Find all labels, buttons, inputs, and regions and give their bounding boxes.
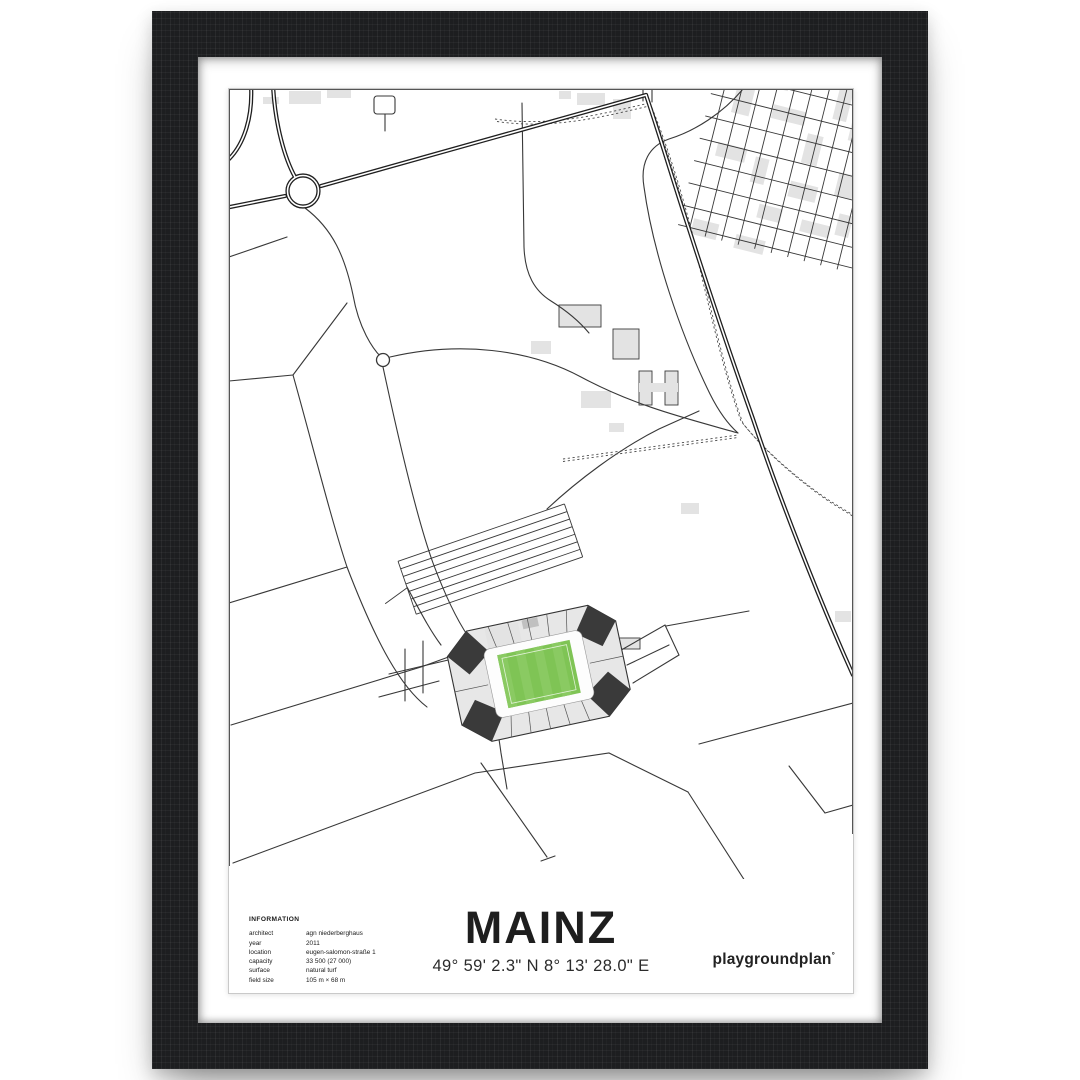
footpath-dashed <box>495 103 853 518</box>
grid-streets <box>677 89 853 276</box>
mat: INFORMATION architectagn niederberghaus … <box>198 57 882 1023</box>
street-grid <box>676 89 853 280</box>
brand-logo: playgroundplan° <box>713 951 835 969</box>
poster: INFORMATION architectagn niederberghaus … <box>228 88 854 994</box>
parking-rows <box>373 504 582 623</box>
map <box>229 89 853 879</box>
picture-frame: INFORMATION architectagn niederberghaus … <box>152 11 928 1069</box>
poster-title: MAINZ <box>229 905 853 951</box>
map-border <box>230 90 853 867</box>
brand-mark: ° <box>832 951 835 960</box>
info-row: field size105 m × 68 m <box>249 976 376 985</box>
stadium <box>443 600 635 746</box>
mini-roundabout <box>377 354 390 367</box>
